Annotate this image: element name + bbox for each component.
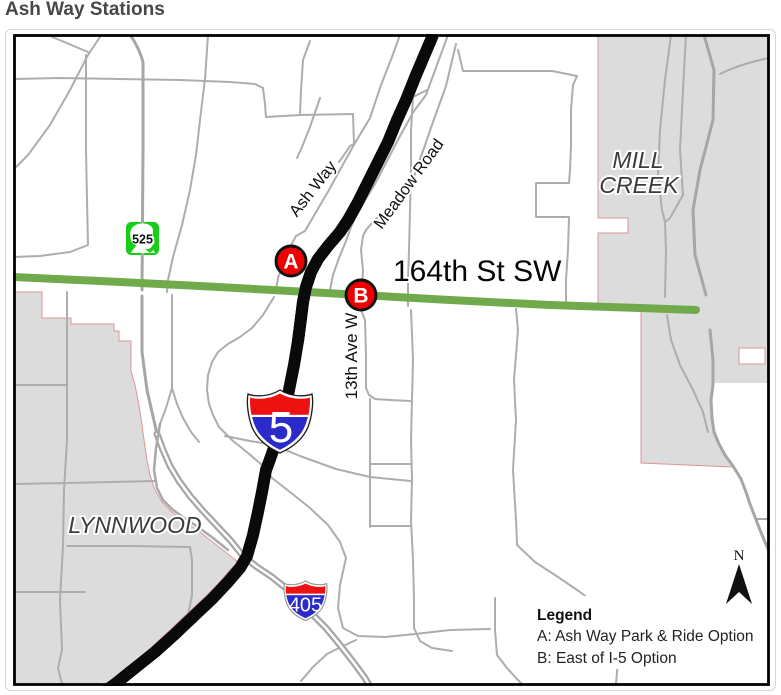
svg-text:405: 405 [289,595,322,617]
svg-text:LYNNWOOD: LYNNWOOD [68,512,201,538]
svg-text:B: B [353,285,368,308]
svg-text:13th Ave W: 13th Ave W [342,313,361,400]
svg-text:525: 525 [132,233,153,247]
svg-text:CREEK: CREEK [599,172,680,198]
svg-text:B: East of I-5 Option: B: East of I-5 Option [537,650,677,667]
svg-text:MILL: MILL [612,147,663,173]
svg-text:164th St SW: 164th St SW [393,255,562,288]
svg-text:5: 5 [269,403,293,452]
svg-text:Legend: Legend [537,607,592,624]
svg-text:A: Ash Way Park & Ride Option: A: Ash Way Park & Ride Option [537,628,754,645]
svg-text:N: N [734,548,745,564]
svg-text:A: A [283,251,298,274]
